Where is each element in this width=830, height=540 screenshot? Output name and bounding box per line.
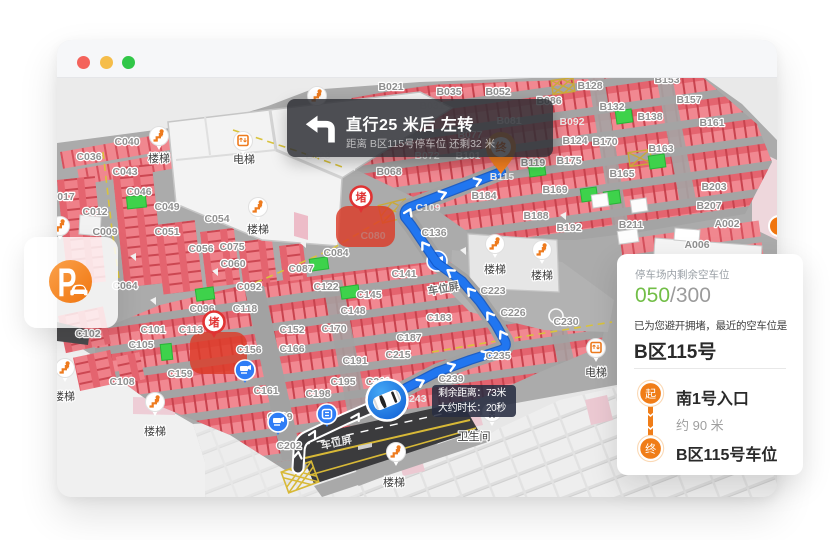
svg-text:楼梯: 楼梯 [144,424,166,438]
svg-text:C040: C040 [114,136,139,148]
svg-text:B170: B170 [592,136,617,148]
svg-text:C195: C195 [330,376,355,388]
svg-text:C161: C161 [253,385,278,397]
svg-text:C092: C092 [236,281,261,293]
svg-text:C080: C080 [360,230,385,242]
svg-text:C043: C043 [112,166,137,178]
svg-text:C152: C152 [279,324,304,336]
svg-text:C054: C054 [204,213,229,225]
svg-text:楼梯: 楼梯 [383,475,405,489]
svg-text:C239: C239 [438,373,463,385]
svg-text:B128: B128 [577,80,602,92]
svg-text:P: P [58,261,77,304]
svg-text:B124: B124 [562,135,587,147]
svg-text:C118: C118 [233,303,258,315]
svg-text:楼梯: 楼梯 [57,389,75,403]
svg-text:C060: C060 [220,258,245,270]
svg-text:B188: B188 [523,210,548,222]
svg-text:B207: B207 [696,200,721,212]
svg-text:堵: 堵 [356,190,367,204]
svg-text:C187: C187 [396,332,421,344]
svg-text:C136: C136 [421,227,446,239]
svg-text:B175: B175 [556,155,581,167]
svg-text:C230: C230 [553,316,578,328]
svg-text:C215: C215 [385,349,410,361]
svg-text:B157: B157 [676,94,701,106]
svg-text:C113: C113 [179,324,204,336]
svg-text:楼梯: 楼梯 [484,262,506,276]
svg-text:B138: B138 [637,111,662,123]
svg-text:C198: C198 [305,388,330,400]
svg-text:C159: C159 [167,368,192,380]
svg-text:C183: C183 [426,312,451,324]
svg-text:B035: B035 [436,86,461,98]
svg-text:C145: C145 [356,289,381,301]
svg-text:B163: B163 [648,143,673,155]
svg-text:B165: B165 [609,168,634,180]
svg-text:B169: B169 [542,184,567,196]
svg-text:楼梯: 楼梯 [531,268,553,282]
svg-text:电梯: 电梯 [233,153,255,166]
svg-text:C056: C056 [188,243,213,255]
svg-text:终: 终 [645,442,656,456]
svg-text:C087: C087 [288,263,313,275]
svg-text:B161: B161 [699,117,724,129]
svg-text:B184: B184 [471,190,496,202]
svg-text:C226: C226 [500,307,525,319]
svg-text:起: 起 [645,388,656,401]
svg-text:C105: C105 [128,339,153,351]
svg-text:B021: B021 [378,81,403,93]
svg-text:B192: B192 [556,222,581,234]
svg-text:017: 017 [57,191,75,203]
svg-text:楼梯: 楼梯 [247,222,269,236]
svg-text:C191: C191 [342,355,367,367]
svg-text:C046: C046 [126,186,151,198]
svg-text:A002: A002 [714,218,739,230]
svg-text:堵: 堵 [209,315,220,329]
svg-text:C122: C122 [313,281,338,293]
svg-text:C148: C148 [340,305,365,317]
svg-text:B132: B132 [599,101,624,113]
svg-text:C170: C170 [321,323,346,335]
svg-text:C049: C049 [154,201,179,213]
svg-text:B153: B153 [654,78,679,86]
svg-text:C166: C166 [279,343,304,355]
svg-text:A006: A006 [684,239,709,251]
svg-text:C102: C102 [75,328,100,340]
svg-text:C235: C235 [485,350,510,362]
svg-text:C141: C141 [391,268,416,280]
svg-text:C109: C109 [415,202,440,214]
svg-text:楼梯: 楼梯 [148,151,170,165]
svg-text:C051: C051 [154,226,179,238]
svg-text:C156: C156 [236,344,261,356]
svg-text:C108: C108 [109,376,134,388]
svg-text:C223: C223 [480,285,505,297]
svg-text:C202: C202 [276,440,301,452]
svg-text:C075: C075 [219,241,244,253]
svg-text:B211: B211 [619,219,644,231]
svg-text:电梯: 电梯 [585,366,607,379]
svg-text:B203: B203 [701,181,726,193]
svg-text:B068: B068 [376,166,401,178]
svg-text:C084: C084 [323,247,348,259]
svg-text:C012: C012 [82,206,107,218]
svg-text:B115: B115 [490,171,515,183]
svg-text:B119: B119 [521,157,546,169]
svg-text:C101: C101 [140,324,165,336]
svg-text:C036: C036 [76,151,101,163]
svg-text:卫生间: 卫生间 [458,429,491,443]
svg-text:B052: B052 [485,86,510,98]
